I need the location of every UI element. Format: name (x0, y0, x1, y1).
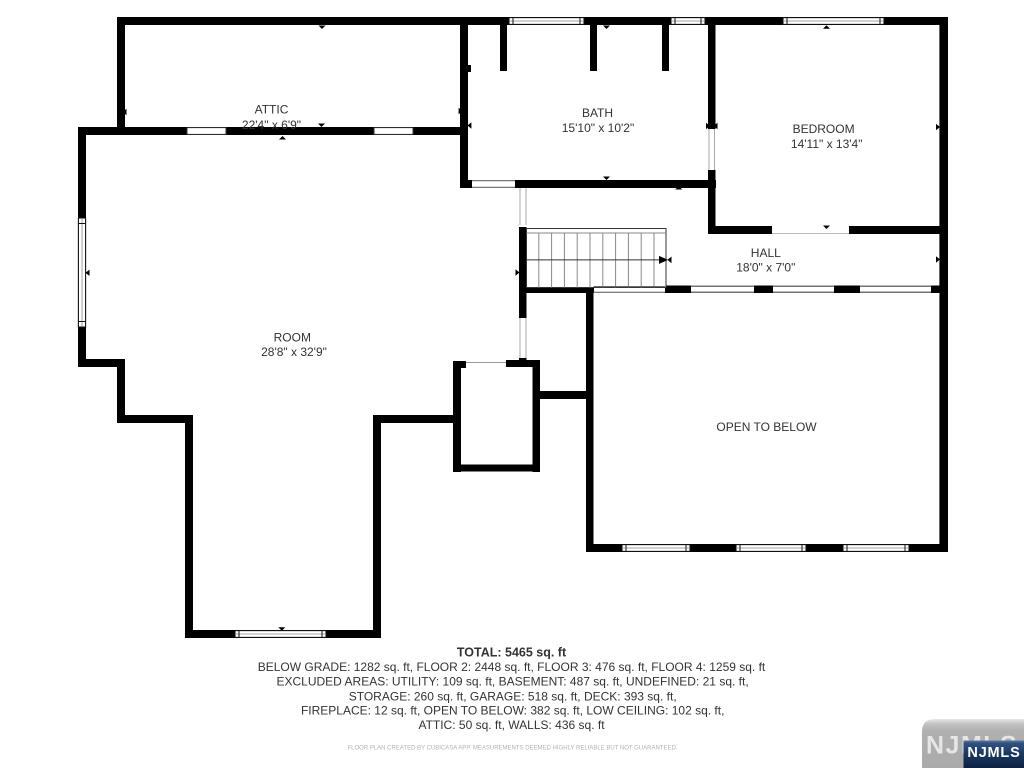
svg-text:ROOM: ROOM (274, 330, 311, 344)
svg-text:STORAGE: 260 sq. ft, GARAGE: 5: STORAGE: 260 sq. ft, GARAGE: 518 sq. ft,… (349, 689, 677, 703)
svg-text:18'0" x 7'0": 18'0" x 7'0" (736, 261, 795, 275)
svg-text:FLOOR PLAN CREATED BY CUBICASA: FLOOR PLAN CREATED BY CUBICASA APP. MEAS… (348, 745, 678, 751)
svg-text:EXCLUDED AREAS: UTILITY: 109 s: EXCLUDED AREAS: UTILITY: 109 sq. ft, BAS… (277, 675, 749, 689)
svg-text:ATTIC: ATTIC (255, 103, 289, 117)
svg-text:HALL: HALL (751, 246, 781, 260)
svg-text:BEDROOM: BEDROOM (793, 122, 855, 136)
svg-text:BELOW GRADE: 1282 sq. ft, FLOO: BELOW GRADE: 1282 sq. ft, FLOOR 2: 2448 … (258, 660, 766, 674)
svg-text:22'4" x 6'9": 22'4" x 6'9" (242, 118, 301, 132)
svg-text:OPEN TO BELOW: OPEN TO BELOW (716, 420, 817, 434)
svg-text:FIREPLACE: 12 sq. ft, OPEN TO: FIREPLACE: 12 sq. ft, OPEN TO BELOW: 382… (301, 704, 725, 718)
svg-text:28'8" x 32'9": 28'8" x 32'9" (261, 345, 327, 359)
svg-text:ATTIC: 50 sq. ft, WALLS: 436 s: ATTIC: 50 sq. ft, WALLS: 436 sq. ft (418, 718, 605, 732)
svg-text:BATH: BATH (582, 106, 613, 120)
svg-text:TOTAL: 5465 sq. ft: TOTAL: 5465 sq. ft (457, 645, 567, 659)
svg-text:NJMLS: NJMLS (967, 745, 1020, 761)
svg-text:15'10" x 10'2": 15'10" x 10'2" (562, 121, 635, 135)
svg-text:14'11" x 13'4": 14'11" x 13'4" (791, 137, 863, 151)
